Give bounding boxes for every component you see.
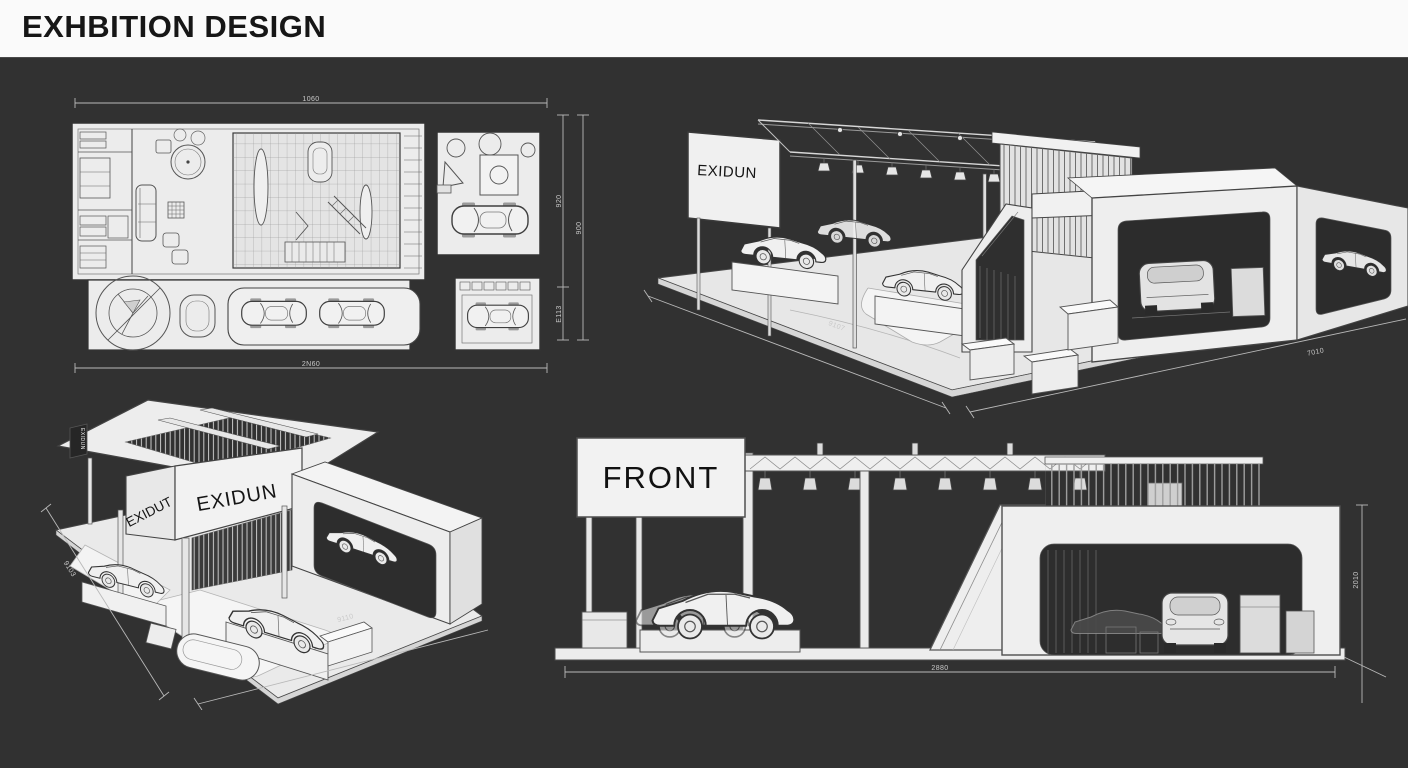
car-top-icon (320, 298, 385, 328)
front-elevation-view: FRONT (540, 415, 1408, 715)
floor-plan-view: 1060 (60, 90, 605, 390)
car-top-icon (242, 298, 307, 328)
car-top-icon (452, 203, 528, 238)
front-elevation-drawing: FRONT (540, 415, 1408, 715)
dimension-label: 920 (556, 195, 563, 208)
plan-upper-right-block (437, 132, 540, 255)
floor-plan-drawing: 1060 (60, 90, 605, 390)
slide-header: EXHBITION DESIGN (0, 0, 1408, 58)
plan-lower-right-block (455, 278, 540, 350)
plan-dimension-right: 920 E113 900 (556, 115, 589, 340)
booth-logo-text-small: EXIDUN (79, 428, 85, 450)
plan-dimension-top: 1060 (75, 96, 547, 108)
isometric-drawing-left: EXIDUN EXIDUT EXIDUN (30, 390, 490, 710)
page-title: EXHBITION DESIGN (22, 9, 326, 45)
booth-logo-text: EXIDUN (697, 162, 757, 182)
isometric-drawing-right: EXIDUN (640, 100, 1408, 430)
dimension-label: 2010 (1353, 571, 1360, 588)
car-front-icon (1162, 593, 1228, 653)
dimension-label: 900 (576, 222, 583, 235)
plan-grid-mat (233, 133, 400, 268)
dimension-label: 2880 (931, 665, 948, 672)
plan-dimension-bottom: 2N60 (75, 361, 547, 373)
view-label: FRONT (603, 460, 720, 495)
dimension-label: E113 (556, 305, 563, 322)
dimension-label: 1060 (302, 96, 319, 103)
plan-main-hall (72, 123, 425, 280)
dimension-label: 7010 (1307, 347, 1325, 357)
car-display (582, 591, 800, 652)
car-front-icon (1139, 260, 1216, 315)
dimension-label: 2N60 (302, 361, 320, 368)
car-top-icon (468, 302, 529, 330)
plan-lower-strip (88, 276, 420, 350)
isometric-view-right: EXIDUN (640, 100, 1408, 430)
right-portal (1002, 506, 1340, 655)
side-logo-panel: EXIDUN (70, 424, 87, 458)
isometric-view-left: EXIDUN EXIDUT EXIDUN (30, 390, 490, 710)
right-portal-volume (1068, 168, 1408, 362)
